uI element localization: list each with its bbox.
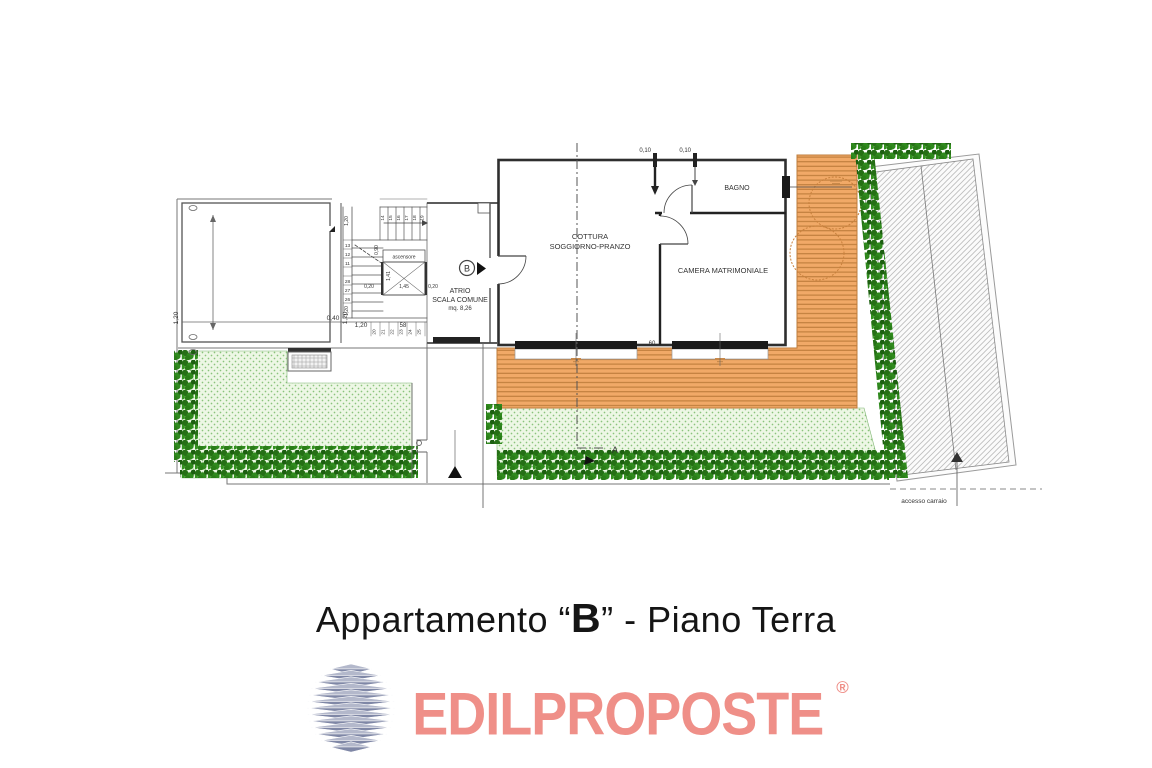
svg-text:23: 23 xyxy=(399,329,405,335)
svg-text:14: 14 xyxy=(380,215,386,221)
dim-window-gap: 60 xyxy=(649,341,656,347)
svg-text:1,45: 1,45 xyxy=(399,284,409,290)
unit-b-letter: B xyxy=(464,264,470,274)
level-marker xyxy=(329,226,335,232)
hedge-clump xyxy=(486,404,502,444)
dim-block-bottom-3: 1,20 xyxy=(355,322,368,329)
agency-logo: EDILPROPOSTE ® xyxy=(0,664,1152,754)
svg-text:22: 22 xyxy=(390,329,396,335)
svg-text:21: 21 xyxy=(381,329,387,335)
room-label-bathroom: BAGNO xyxy=(724,185,750,192)
window-bathroom xyxy=(782,176,790,198)
svg-text:28: 28 xyxy=(345,279,351,285)
stair-treads-left xyxy=(352,248,383,311)
atrium-area-label: mq. 8,26 xyxy=(448,306,472,312)
svg-text:17: 17 xyxy=(404,215,410,221)
atrium-label-1: ATRIO xyxy=(450,288,471,295)
registered-trademark: ® xyxy=(836,678,849,698)
svg-text:26: 26 xyxy=(345,297,351,303)
dim-top-wall-left: 0,10 xyxy=(639,148,651,154)
logo-brand-name: EDILPROPOSTE xyxy=(412,664,823,765)
svg-text:27: 27 xyxy=(345,288,351,294)
svg-text:0,20: 0,20 xyxy=(364,284,374,290)
svg-text:25: 25 xyxy=(417,329,423,335)
dim-stair-width: 58 xyxy=(400,323,407,329)
logo-globe-icon xyxy=(303,664,399,754)
svg-text:20: 20 xyxy=(372,329,378,335)
plan-caption: Appartamento “B” - Piano Terra xyxy=(0,595,1152,642)
planter-grate xyxy=(288,348,331,371)
entry-walkway xyxy=(412,343,483,508)
atrium-label-2: SCALA COMUNE xyxy=(432,297,488,304)
hedge-left xyxy=(174,350,198,462)
driveway-access-label: accesso carraio xyxy=(901,498,947,505)
hedge-bottom-right xyxy=(497,450,889,480)
svg-text:16: 16 xyxy=(396,215,402,221)
svg-text:12: 12 xyxy=(345,252,351,258)
svg-text:1,20: 1,20 xyxy=(344,306,350,316)
svg-text:24: 24 xyxy=(408,329,414,335)
room-label-bedroom: CAMERA MATRIMONIALE xyxy=(678,266,768,275)
hedge-top xyxy=(851,143,951,159)
svg-text:1,41: 1,41 xyxy=(386,271,392,281)
svg-text:0,90: 0,90 xyxy=(374,245,380,255)
floorplan-drawing: accesso carraio 1,20 0,40 1,20 1,20 58 xyxy=(0,0,1152,520)
svg-text:19: 19 xyxy=(420,215,426,221)
dim-block-bottom-1: 0,40 xyxy=(327,315,340,322)
hedge-bottom-left xyxy=(180,446,418,478)
caption-unit-letter: B xyxy=(571,595,601,641)
dim-block-left: 1,20 xyxy=(173,311,180,324)
svg-text:18: 18 xyxy=(412,215,418,221)
svg-text:1,20: 1,20 xyxy=(344,216,350,226)
atrium-entry-gate xyxy=(433,337,480,343)
svg-text:11: 11 xyxy=(345,261,350,267)
room-label-living-2: SOGGIORNO-PRANZO xyxy=(550,242,631,251)
section-marker-a: A xyxy=(612,445,618,455)
svg-text:15: 15 xyxy=(388,215,394,221)
caption-prefix: Appartamento “ xyxy=(316,599,571,640)
atrium: B ATRIO SCALA COMUNE mq. 8,26 xyxy=(427,203,498,343)
walkway-arrow xyxy=(448,466,462,478)
elevator-label: ascensore xyxy=(392,255,415,261)
caption-suffix: ” - Piano Terra xyxy=(601,599,836,640)
svg-text:13: 13 xyxy=(345,243,351,249)
svg-text:0,20: 0,20 xyxy=(428,284,438,290)
dim-top-wall-right: 0,10 xyxy=(679,148,691,154)
left-building-block: 1,20 0,40 1,20 1,20 58 xyxy=(173,203,497,355)
unit-b-arrow xyxy=(477,262,486,275)
floorplan-page: accesso carraio 1,20 0,40 1,20 1,20 58 xyxy=(0,0,1152,768)
